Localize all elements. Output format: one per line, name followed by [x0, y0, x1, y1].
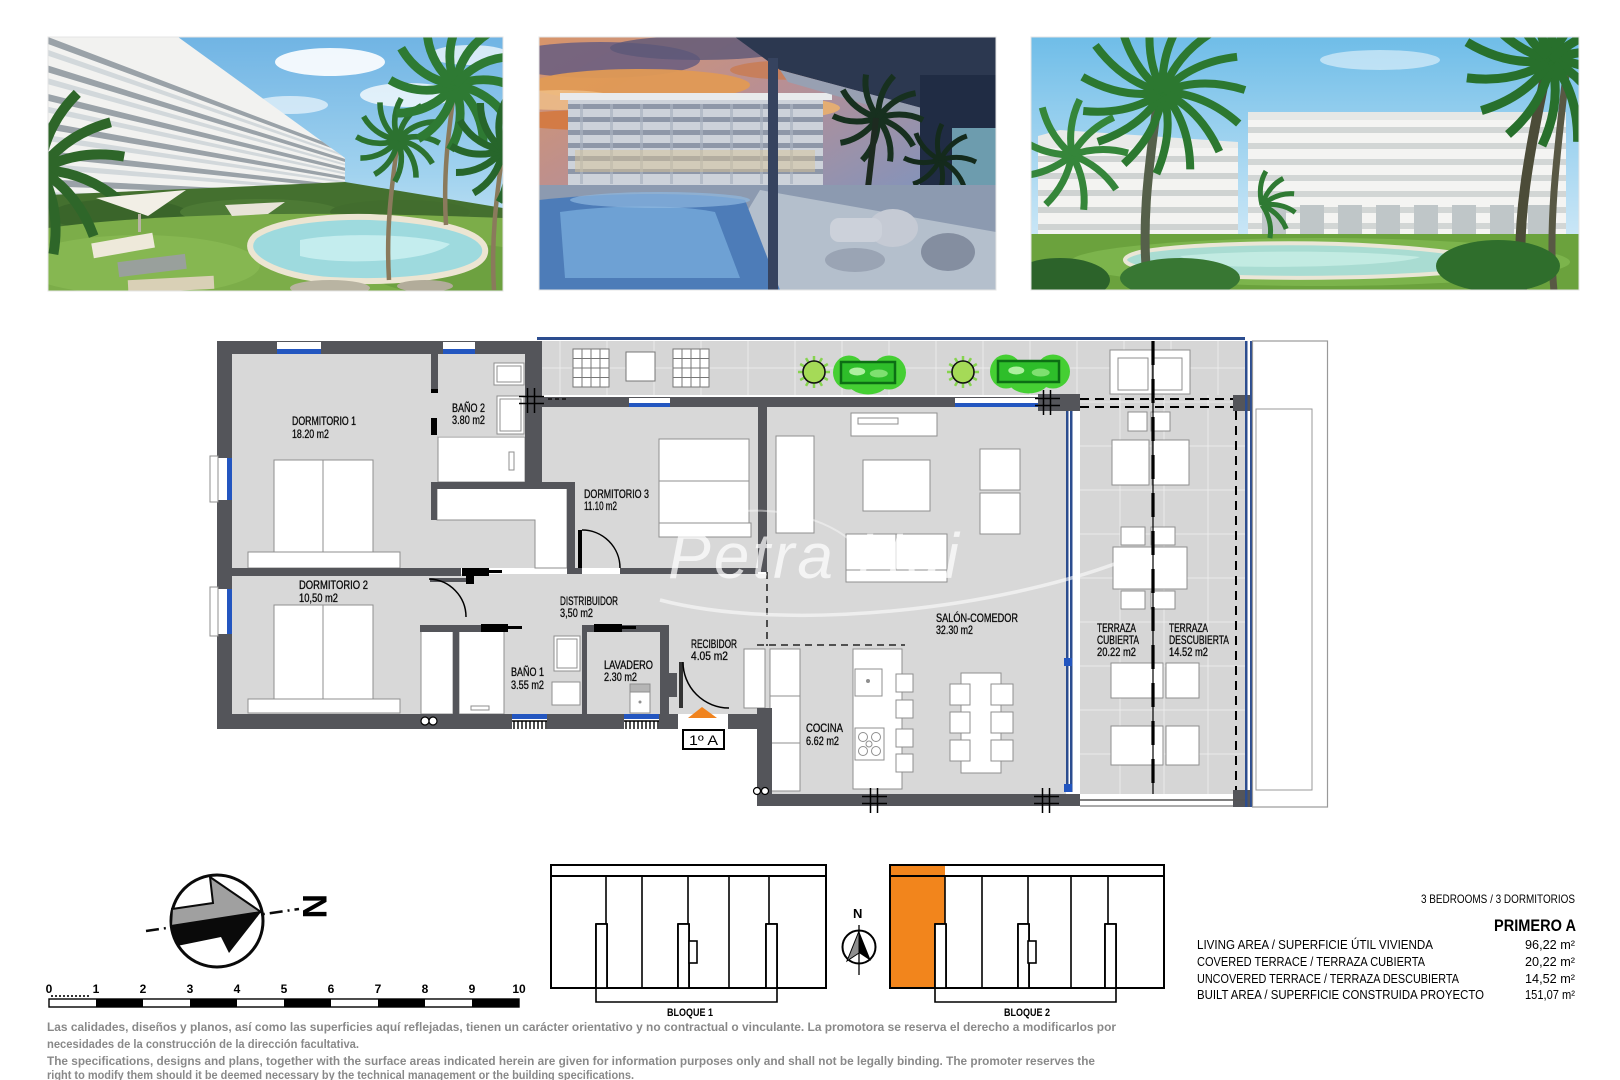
svg-text:BLOQUE 2: BLOQUE 2	[1004, 1007, 1050, 1019]
svg-text:18.20 m2: 18.20 m2	[292, 427, 329, 441]
svg-text:10: 10	[512, 982, 526, 996]
svg-text:2.30 m2: 2.30 m2	[604, 670, 637, 684]
svg-text:5: 5	[281, 982, 288, 996]
svg-text:BLOQUE 1: BLOQUE 1	[667, 1007, 713, 1019]
svg-text:3,50 m2: 3,50 m2	[560, 606, 593, 620]
svg-text:right to modify them should it: right to modify them should it be deemed…	[47, 1070, 634, 1080]
svg-text:The specifications, designs an: The specifications, designs and plans, t…	[47, 1056, 1095, 1068]
svg-text:DORMITORIO 2: DORMITORIO 2	[299, 578, 368, 592]
svg-text:COVERED TERRACE / TERRAZA CUBI: COVERED TERRACE / TERRAZA CUBIERTA	[1197, 954, 1425, 969]
svg-text:14,52 m²: 14,52 m²	[1525, 971, 1576, 986]
svg-text:N: N	[853, 906, 862, 921]
svg-text:BUILT AREA / SUPERFICIE CONSTR: BUILT AREA / SUPERFICIE CONSTRUIDA PROYE…	[1197, 987, 1484, 1002]
svg-text:BAÑO 1: BAÑO 1	[511, 665, 544, 679]
svg-text:96,22 m²: 96,22 m²	[1525, 937, 1576, 952]
svg-text:necesidades de la construcción: necesidades de la construcción de la dir…	[47, 1039, 359, 1051]
svg-text:3: 3	[187, 982, 194, 996]
svg-text:32.30 m2: 32.30 m2	[936, 623, 973, 637]
svg-text:20.22 m2: 20.22 m2	[1097, 645, 1136, 659]
svg-text:9: 9	[469, 982, 476, 996]
svg-text:14.52 m2: 14.52 m2	[1169, 645, 1208, 659]
svg-text:11.10 m2: 11.10 m2	[584, 499, 617, 513]
svg-text:PRIMERO A: PRIMERO A	[1494, 916, 1576, 935]
svg-text:3.80 m2: 3.80 m2	[452, 413, 485, 427]
svg-text:N: N	[295, 894, 333, 919]
svg-text:COCINA: COCINA	[806, 721, 843, 735]
svg-text:3 BEDROOMS / 3 DORMITORIOS: 3 BEDROOMS / 3 DORMITORIOS	[1421, 892, 1575, 906]
svg-text:6: 6	[328, 982, 335, 996]
svg-text:0: 0	[46, 982, 53, 996]
svg-text:LIVING AREA / SUPERFICIE ÚTIL: LIVING AREA / SUPERFICIE ÚTIL VIVIENDA	[1197, 937, 1433, 952]
svg-text:4.05 m2: 4.05 m2	[691, 649, 728, 663]
svg-text:4: 4	[234, 982, 241, 996]
svg-text:151,07 m²: 151,07 m²	[1525, 987, 1576, 1002]
svg-text:DORMITORIO 1: DORMITORIO 1	[292, 414, 356, 428]
svg-text:8: 8	[422, 982, 429, 996]
svg-text:10,50 m2: 10,50 m2	[299, 591, 338, 605]
svg-text:3.55 m2: 3.55 m2	[511, 678, 544, 692]
svg-text:2: 2	[140, 982, 147, 996]
svg-text:1: 1	[93, 982, 100, 996]
svg-text:UNCOVERED TERRACE / TERRAZA DE: UNCOVERED TERRACE / TERRAZA DESCUBIERTA	[1197, 971, 1459, 986]
svg-text:1º A: 1º A	[689, 732, 719, 748]
svg-text:6.62 m2: 6.62 m2	[806, 734, 839, 748]
svg-text:Las calidades, diseños y plano: Las calidades, diseños y planos, así com…	[47, 1022, 1117, 1034]
svg-text:Petra Hui: Petra Hui	[668, 520, 962, 592]
svg-text:7: 7	[375, 982, 382, 996]
svg-text:20,22 m²: 20,22 m²	[1525, 954, 1576, 969]
